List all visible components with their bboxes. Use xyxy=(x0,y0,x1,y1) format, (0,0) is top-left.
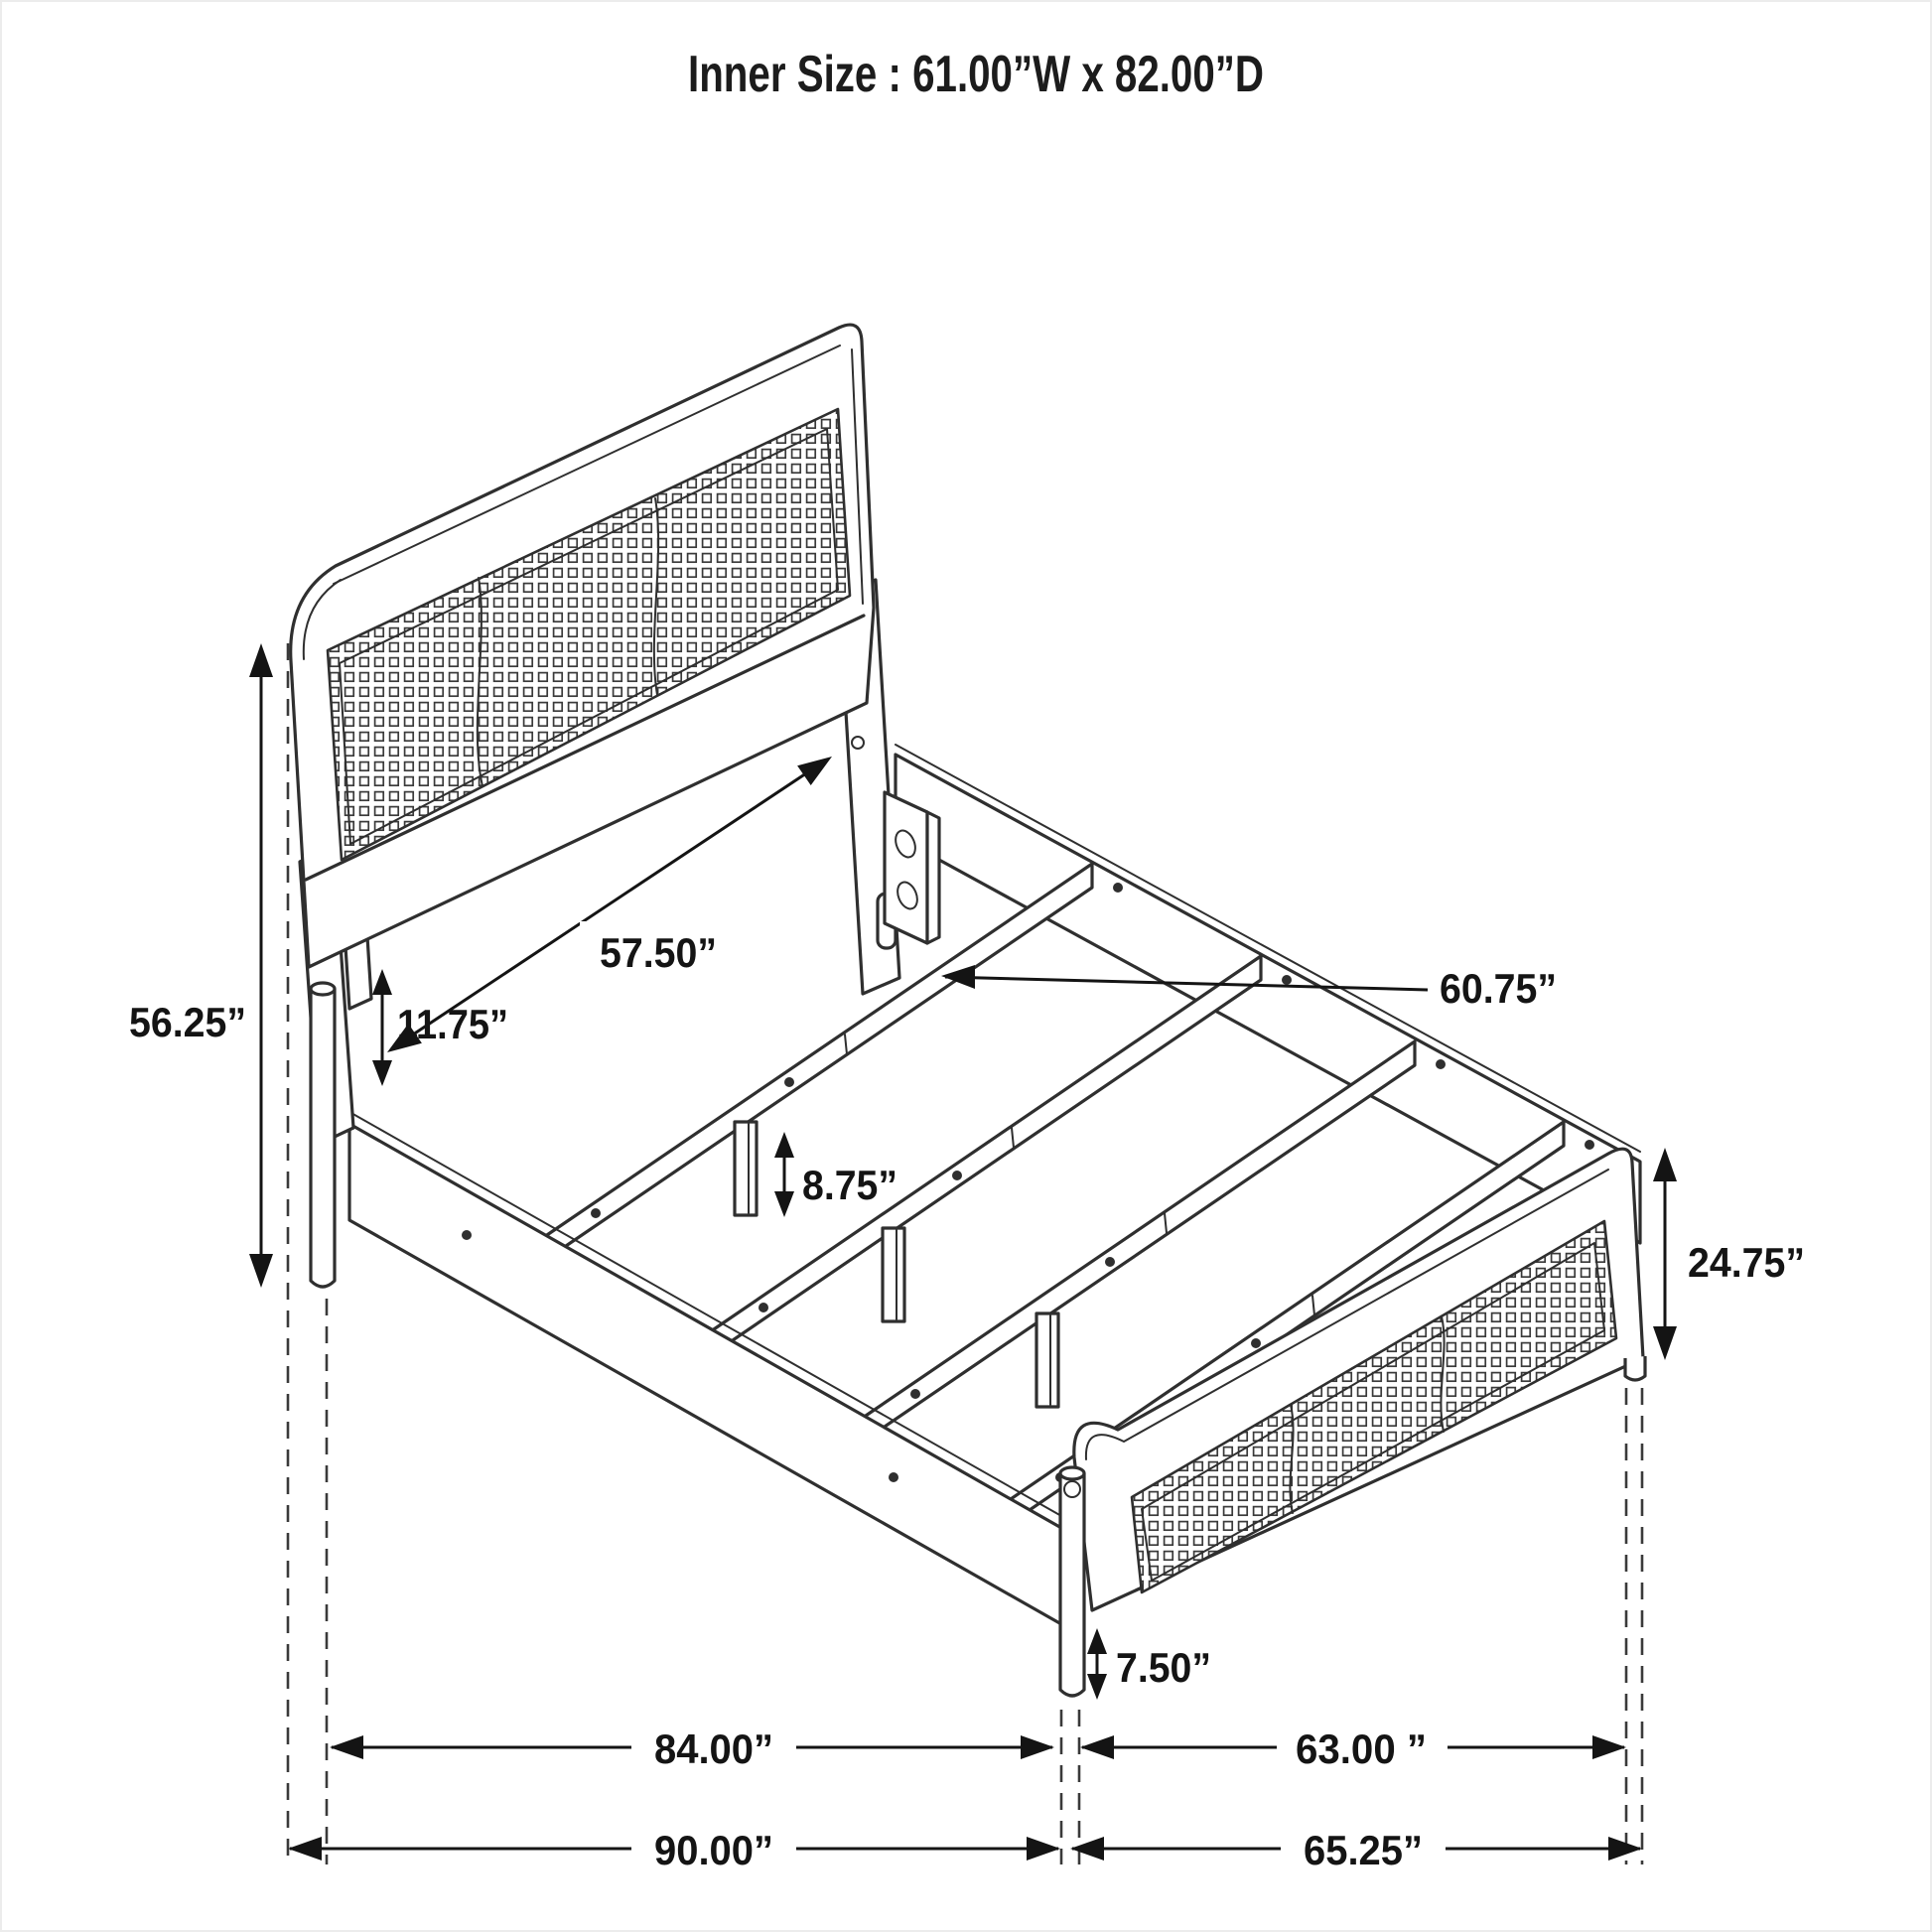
slat-screw xyxy=(1105,1257,1115,1267)
footboard-right-leg xyxy=(1625,1356,1645,1380)
rail-screw xyxy=(1282,975,1292,985)
dim-label: 57.50” xyxy=(600,929,717,976)
dim-label: 63.00 ” xyxy=(1296,1725,1427,1772)
dim-label: 24.75” xyxy=(1688,1239,1805,1286)
slat-screw xyxy=(591,1208,601,1218)
dim-label: 90.00” xyxy=(654,1827,773,1873)
dim-label: 56.25” xyxy=(129,999,246,1045)
rail-screw xyxy=(889,1472,898,1482)
headboard-front-leg-top xyxy=(311,983,335,995)
page-title: Inner Size : 61.00”W x 82.00”D xyxy=(688,46,1264,103)
slat-screw xyxy=(759,1303,768,1312)
rail-screw xyxy=(462,1230,472,1240)
dim-label: 11.75” xyxy=(397,1001,508,1047)
dim-label: 65.25” xyxy=(1304,1827,1423,1873)
slat-center-leg xyxy=(1036,1313,1058,1407)
slat-screw xyxy=(784,1077,794,1087)
dim-label: 60.75” xyxy=(1440,965,1557,1012)
dim-label: 8.75” xyxy=(802,1162,897,1208)
rail-screw xyxy=(1436,1059,1446,1069)
rail-bracket xyxy=(885,792,927,943)
bed-frame-dimension-diagram: Inner Size : 61.00”W x 82.00”D xyxy=(0,0,1932,1932)
rail-bracket-side xyxy=(927,812,939,943)
rail-screw xyxy=(1113,883,1123,893)
headboard-front-leg xyxy=(311,989,335,1287)
dim-label: 84.00” xyxy=(654,1725,773,1772)
slat-screw xyxy=(1251,1338,1261,1348)
footboard-left-leg xyxy=(1060,1473,1084,1696)
slat-screw xyxy=(910,1389,920,1399)
slat-center-leg xyxy=(735,1122,757,1215)
rail-screw xyxy=(1585,1140,1594,1150)
footboard-left-leg-top xyxy=(1060,1467,1084,1479)
slat-center-leg xyxy=(883,1228,904,1321)
slat-screw xyxy=(952,1171,962,1180)
dim-label: 7.50” xyxy=(1116,1644,1211,1691)
